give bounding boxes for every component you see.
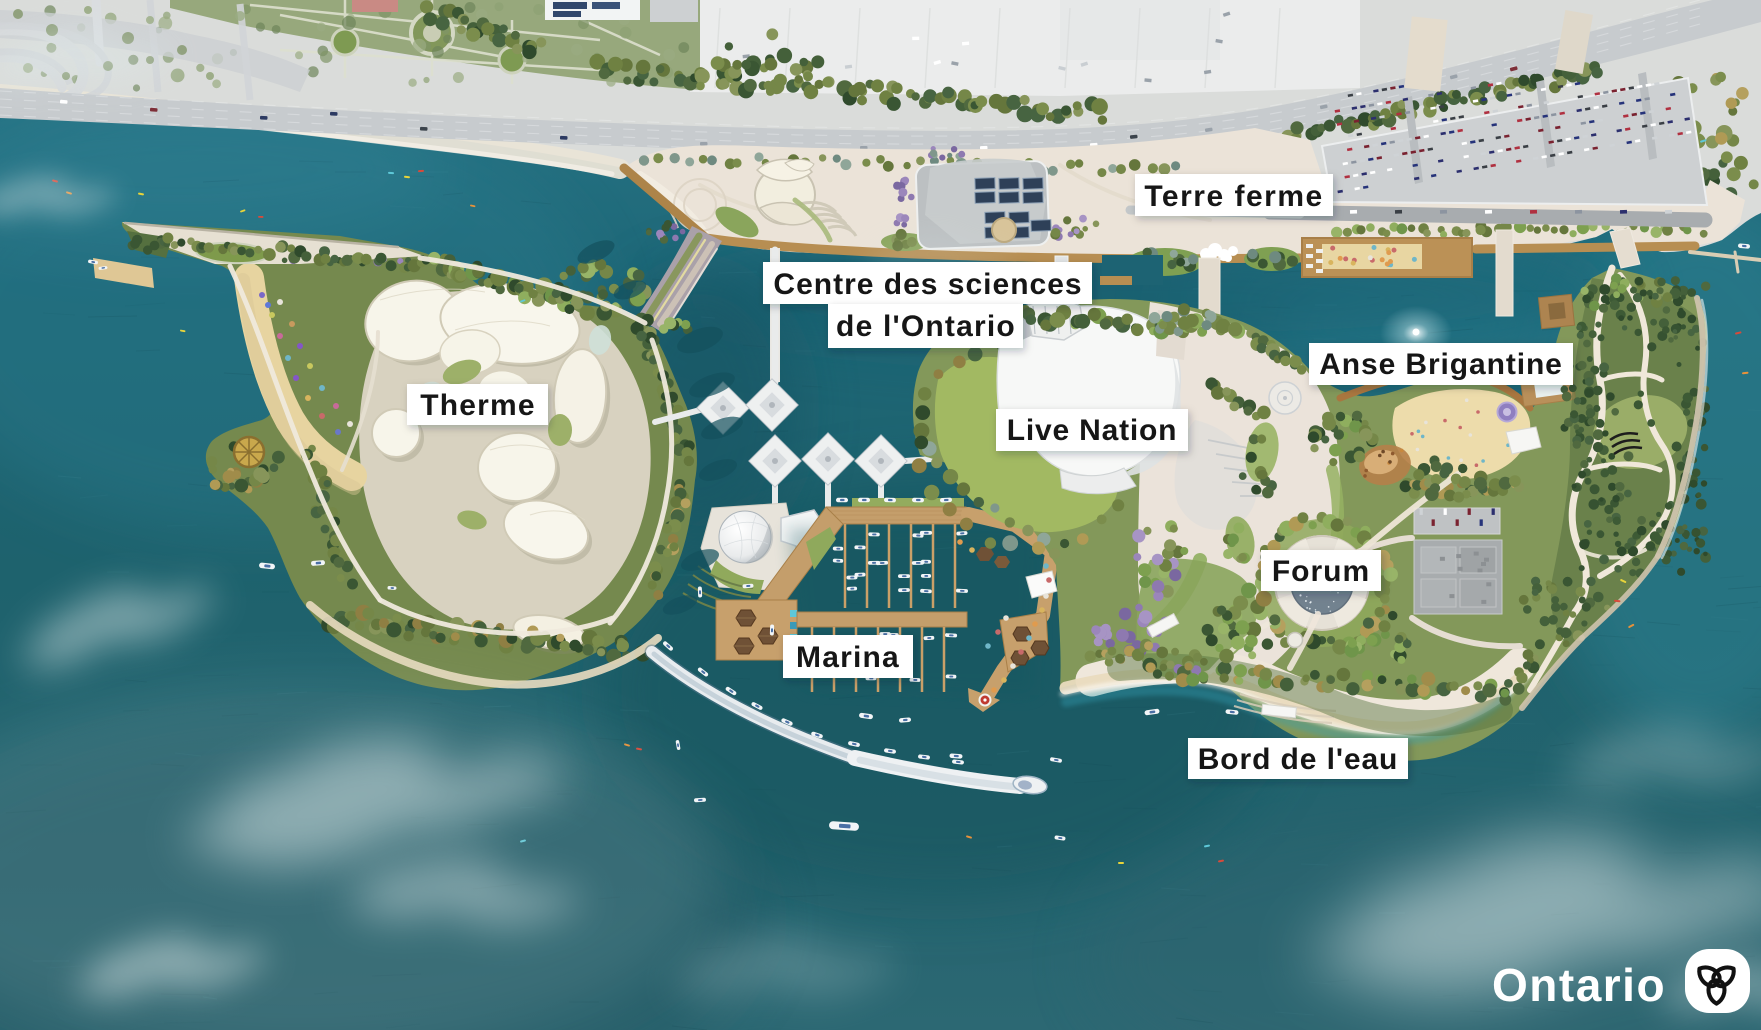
svg-text:Centre des sciences: Centre des sciences [773, 268, 1082, 301]
svg-text:Therme: Therme [420, 389, 536, 422]
svg-text:Bord de l'eau: Bord de l'eau [1198, 743, 1399, 776]
svg-text:Marina: Marina [796, 641, 900, 674]
svg-text:Anse Brigantine: Anse Brigantine [1319, 348, 1563, 381]
svg-text:Live Nation: Live Nation [1007, 414, 1178, 447]
svg-text:de l'Ontario: de l'Ontario [836, 310, 1016, 343]
svg-text:Terre ferme: Terre ferme [1144, 180, 1323, 213]
svg-text:Forum: Forum [1272, 555, 1370, 588]
svg-text:Ontario: Ontario [1492, 959, 1666, 1011]
